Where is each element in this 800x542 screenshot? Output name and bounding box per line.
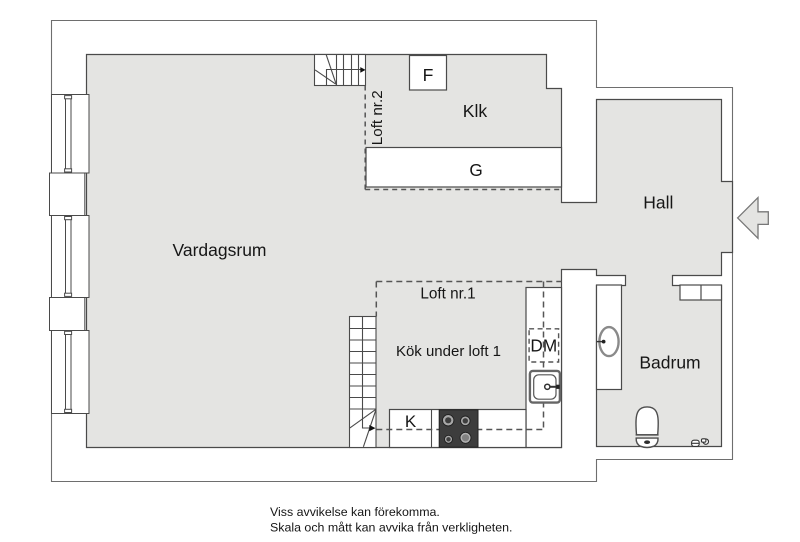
svg-text:Skala och mått kan avvika från: Skala och mått kan avvika från verklighe… [270,521,512,535]
svg-text:F: F [423,65,434,85]
svg-text:Loft nr.2: Loft nr.2 [369,90,386,145]
svg-text:DM: DM [530,336,557,356]
svg-text:Loft nr.1: Loft nr.1 [420,286,475,303]
svg-text:Vardagsrum: Vardagsrum [172,240,266,260]
svg-text:Badrum: Badrum [639,353,700,373]
svg-text:Viss avvikelse kan förekomma.: Viss avvikelse kan förekomma. [270,505,440,519]
svg-text:Klk: Klk [463,101,488,121]
svg-text:Kök under loft 1: Kök under loft 1 [396,343,501,360]
svg-text:G: G [469,160,482,180]
svg-text:K: K [405,412,417,431]
svg-text:Hall: Hall [643,193,673,213]
